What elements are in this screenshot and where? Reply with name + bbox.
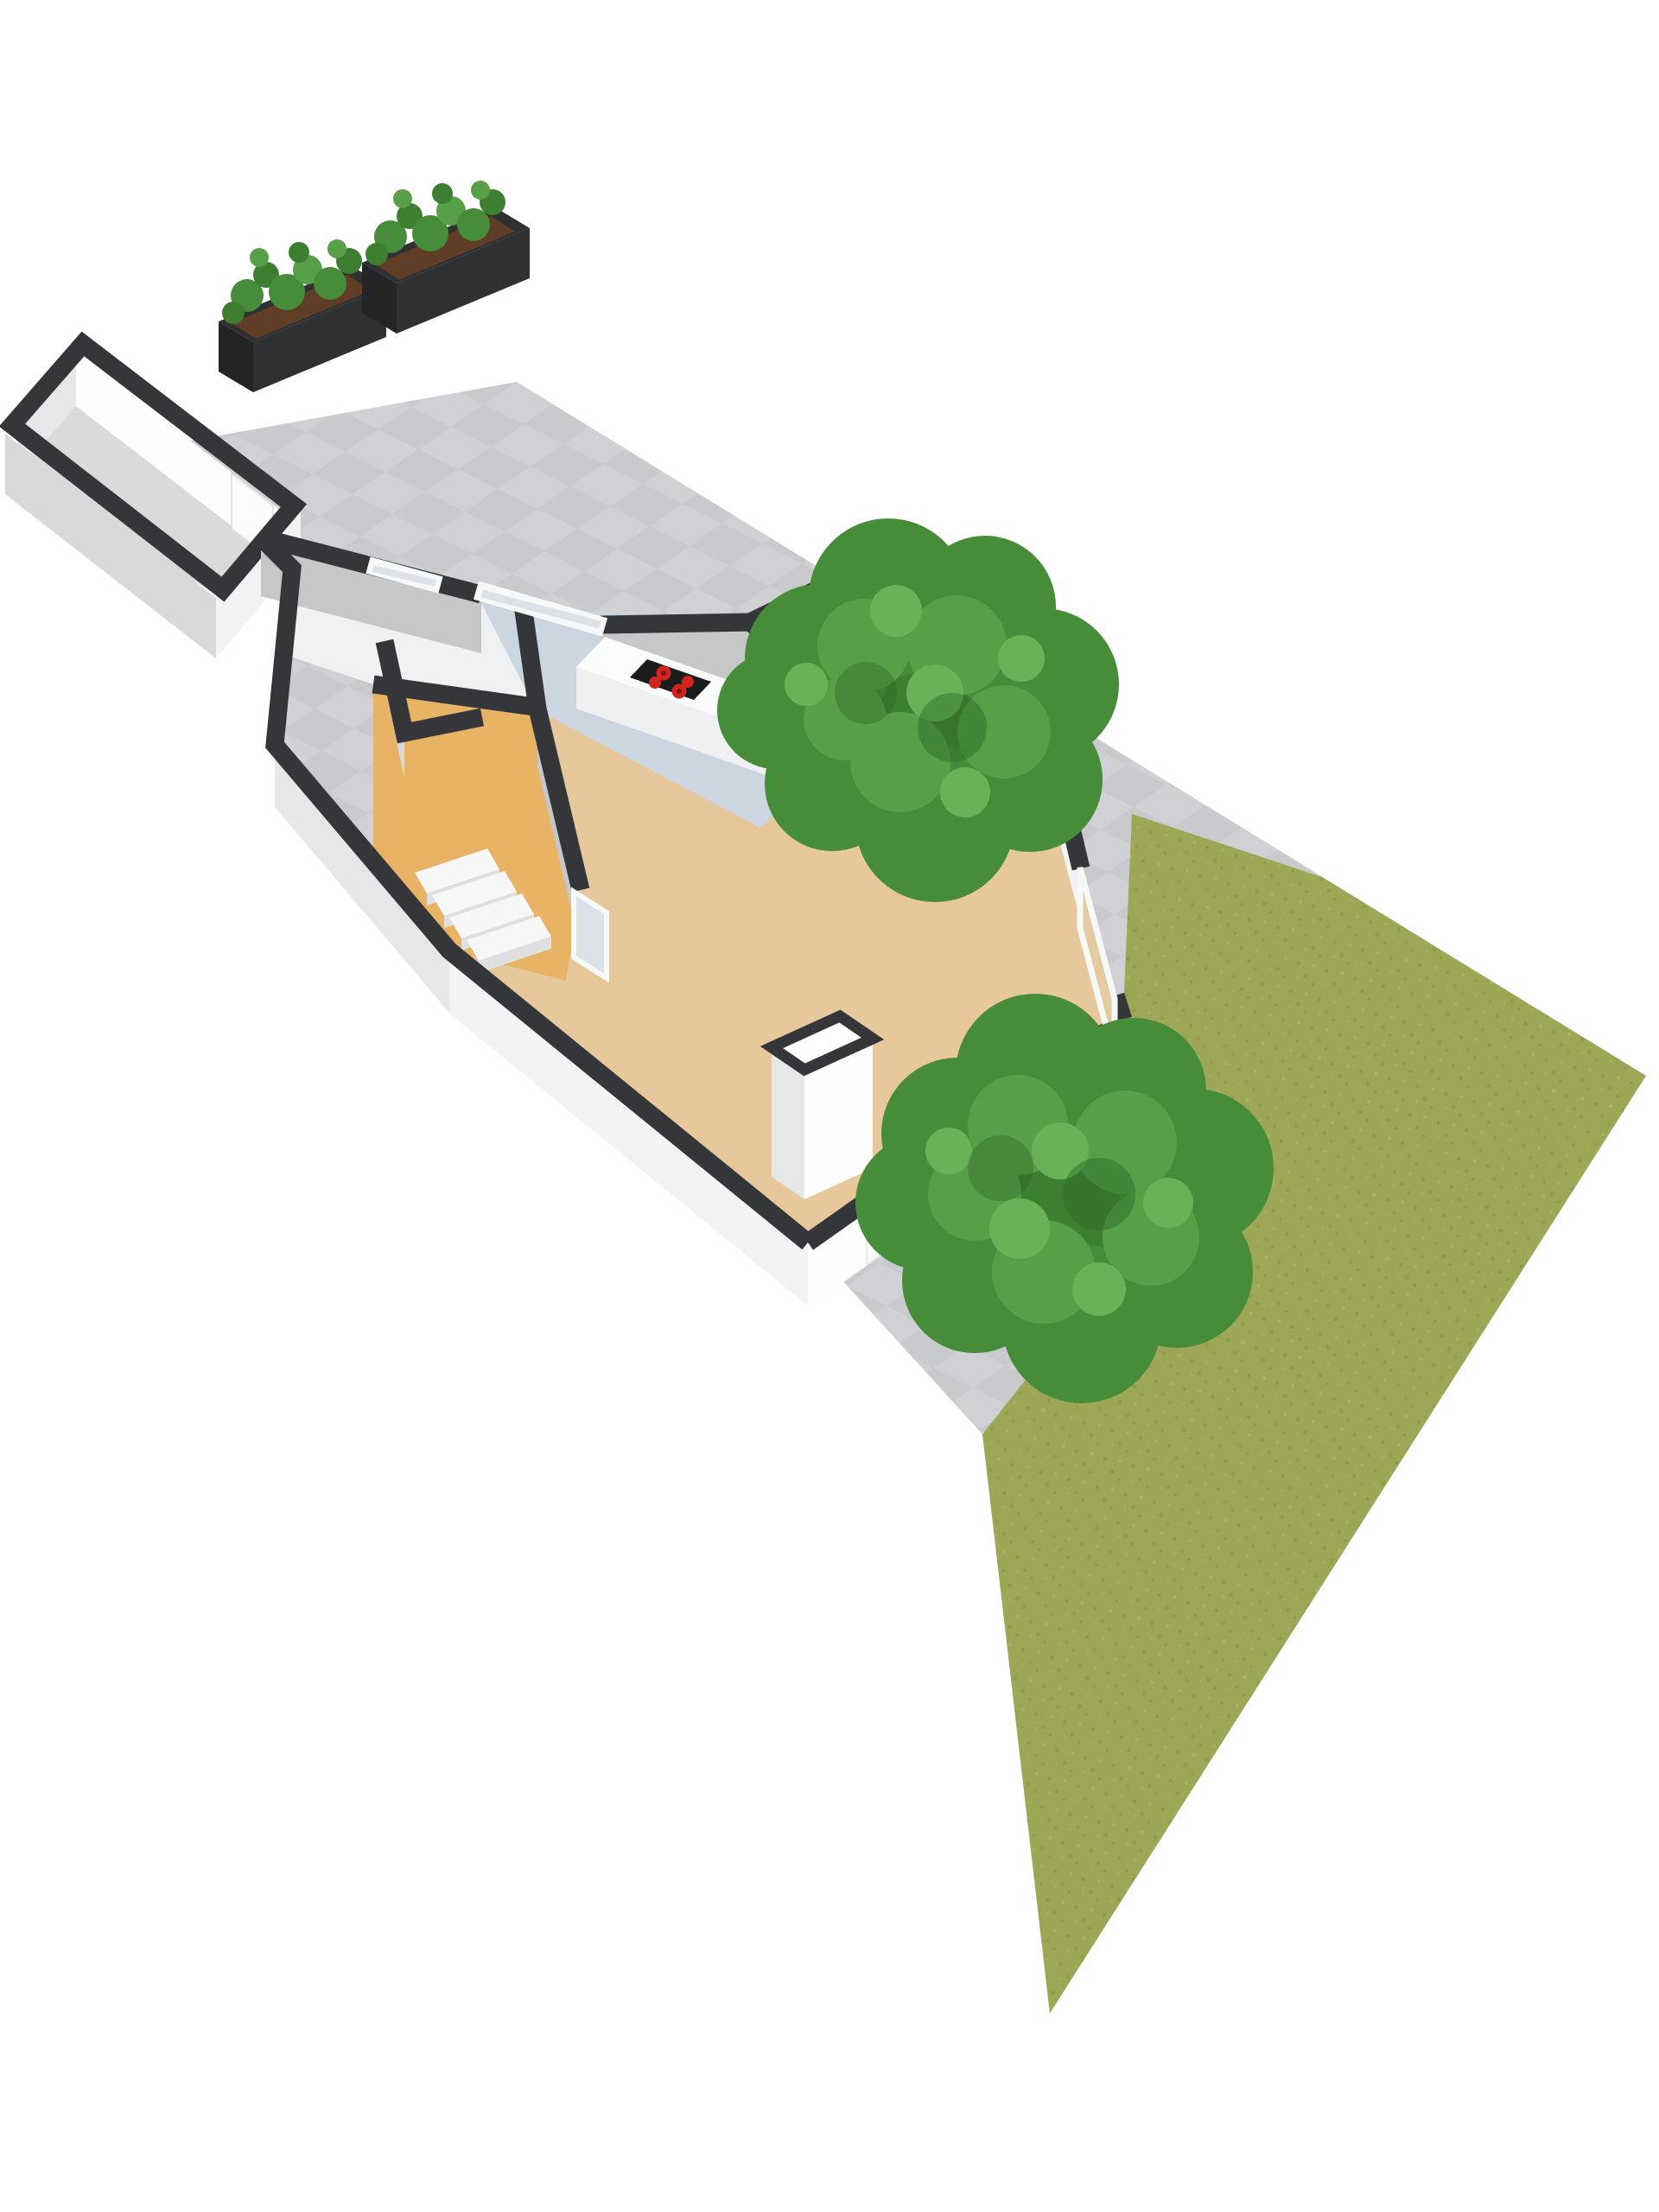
floorplan-3d-render <box>0 0 1659 2212</box>
burner-core <box>661 671 666 676</box>
burner <box>649 677 661 689</box>
back-wall-band-right <box>601 622 753 625</box>
burner-core <box>677 689 682 694</box>
chimney-block <box>772 1016 873 1199</box>
scene-svg <box>0 0 1659 2212</box>
